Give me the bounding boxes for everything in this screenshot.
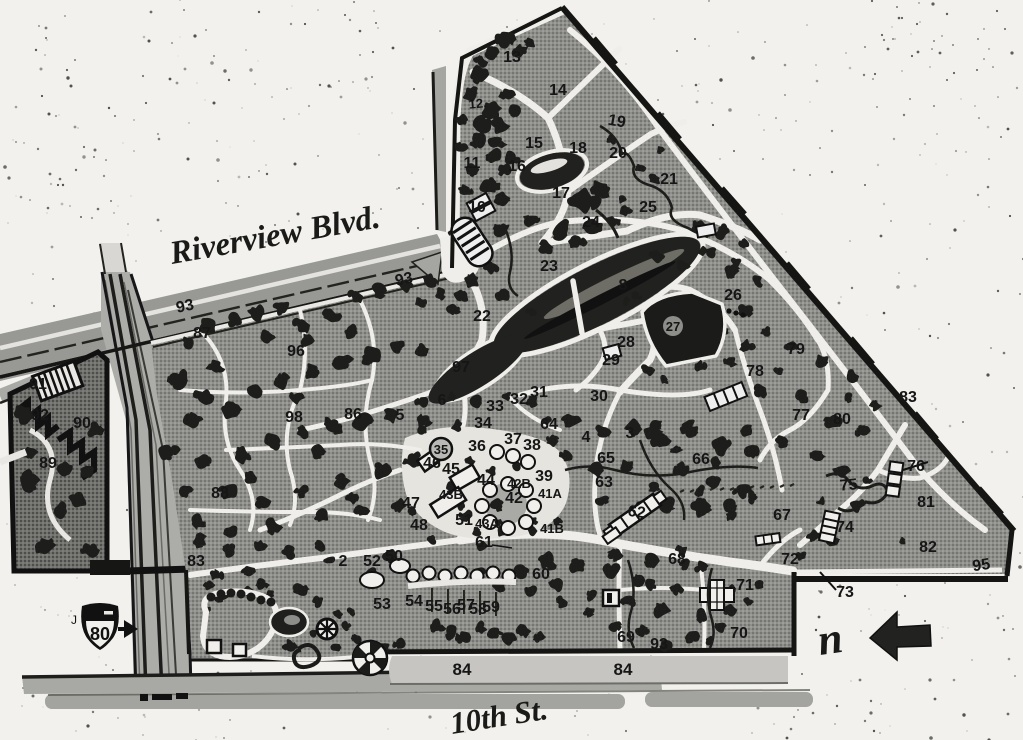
svg-text:98: 98 <box>285 409 303 426</box>
svg-text:17: 17 <box>552 185 570 202</box>
svg-text:59: 59 <box>482 599 500 616</box>
svg-text:79: 79 <box>787 341 805 358</box>
svg-text:5: 5 <box>396 407 405 424</box>
svg-text:18: 18 <box>569 140 587 157</box>
svg-text:50: 50 <box>385 548 403 565</box>
svg-text:93: 93 <box>650 636 668 653</box>
svg-text:73: 73 <box>836 584 854 601</box>
svg-text:15: 15 <box>525 135 543 152</box>
svg-text:60: 60 <box>532 566 550 583</box>
svg-text:41A: 41A <box>538 486 562 501</box>
svg-text:32: 32 <box>510 391 528 408</box>
svg-text:67: 67 <box>773 507 791 524</box>
svg-text:19: 19 <box>607 112 628 132</box>
svg-text:35: 35 <box>434 442 448 457</box>
svg-text:6: 6 <box>438 392 447 409</box>
svg-text:36: 36 <box>468 438 486 455</box>
svg-text:63: 63 <box>595 474 613 491</box>
svg-text:82: 82 <box>919 539 937 556</box>
svg-text:54: 54 <box>405 593 423 610</box>
svg-text:95: 95 <box>971 556 991 575</box>
svg-text:34: 34 <box>474 415 492 432</box>
svg-text:21: 21 <box>660 171 678 188</box>
svg-text:75: 75 <box>839 476 858 494</box>
svg-text:91: 91 <box>29 376 47 393</box>
svg-text:30: 30 <box>590 388 608 405</box>
svg-text:53: 53 <box>373 596 391 613</box>
svg-text:47: 47 <box>402 495 420 512</box>
svg-text:28: 28 <box>617 334 635 351</box>
svg-text:13: 13 <box>503 49 521 66</box>
svg-text:10: 10 <box>468 199 486 216</box>
svg-text:74: 74 <box>836 519 854 536</box>
svg-text:70: 70 <box>730 625 748 642</box>
svg-text:45: 45 <box>442 461 460 478</box>
svg-text:26: 26 <box>724 287 742 304</box>
svg-text:29: 29 <box>602 352 620 369</box>
svg-text:25: 25 <box>639 199 657 216</box>
svg-text:55: 55 <box>425 598 443 615</box>
svg-text:24: 24 <box>582 214 600 231</box>
svg-text:86: 86 <box>344 406 362 423</box>
svg-text:93: 93 <box>175 296 196 316</box>
svg-text:71: 71 <box>736 577 754 594</box>
svg-text:44: 44 <box>477 472 495 489</box>
svg-text:62: 62 <box>627 503 647 522</box>
svg-text:52: 52 <box>363 553 381 570</box>
svg-text:27: 27 <box>666 319 680 334</box>
svg-text:3: 3 <box>626 425 635 442</box>
svg-text:43A: 43A <box>475 516 499 531</box>
svg-text:20: 20 <box>609 145 627 162</box>
svg-text:41B: 41B <box>540 521 564 536</box>
svg-text:81: 81 <box>917 494 935 511</box>
svg-text:42: 42 <box>505 490 523 507</box>
svg-text:38: 38 <box>523 437 541 454</box>
svg-text:83: 83 <box>899 389 917 406</box>
svg-text:65: 65 <box>597 450 615 467</box>
svg-text:78: 78 <box>746 363 764 380</box>
svg-text:83: 83 <box>187 553 205 570</box>
svg-text:22: 22 <box>473 308 491 325</box>
svg-text:77: 77 <box>792 407 810 424</box>
svg-text:11: 11 <box>464 155 481 172</box>
svg-text:51: 51 <box>455 512 473 529</box>
svg-text:84: 84 <box>453 660 472 679</box>
svg-text:87: 87 <box>193 325 211 342</box>
svg-text:14: 14 <box>549 82 567 99</box>
svg-text:12.: 12. <box>468 95 487 112</box>
svg-text:23: 23 <box>540 258 558 275</box>
svg-text:64: 64 <box>540 416 558 433</box>
svg-text:42B: 42B <box>507 476 531 491</box>
svg-text:89: 89 <box>39 455 57 472</box>
svg-text:31: 31 <box>530 384 548 401</box>
svg-text:33: 33 <box>486 398 504 415</box>
svg-text:4: 4 <box>582 429 591 446</box>
svg-text:43B: 43B <box>439 487 463 502</box>
svg-text:97: 97 <box>452 359 470 376</box>
svg-text:88: 88 <box>211 485 229 502</box>
svg-text:84: 84 <box>614 660 633 679</box>
svg-text:90: 90 <box>73 415 91 432</box>
svg-text:80: 80 <box>833 411 851 428</box>
svg-text:2: 2 <box>339 553 348 570</box>
svg-text:93: 93 <box>394 269 415 289</box>
svg-text:80: 80 <box>90 624 110 644</box>
svg-text:16: 16 <box>508 158 526 175</box>
svg-text:61: 61 <box>475 534 493 551</box>
svg-text:96: 96 <box>287 343 305 360</box>
svg-text:66: 66 <box>692 451 710 468</box>
svg-text:J: J <box>71 613 77 627</box>
svg-text:39: 39 <box>535 468 553 485</box>
svg-text:8: 8 <box>619 277 628 294</box>
svg-text:68: 68 <box>668 551 686 568</box>
svg-text:72: 72 <box>781 551 799 568</box>
svg-text:48: 48 <box>410 517 428 534</box>
svg-text:76: 76 <box>907 458 925 475</box>
svg-text:37: 37 <box>504 431 522 448</box>
svg-text:92: 92 <box>31 407 49 424</box>
